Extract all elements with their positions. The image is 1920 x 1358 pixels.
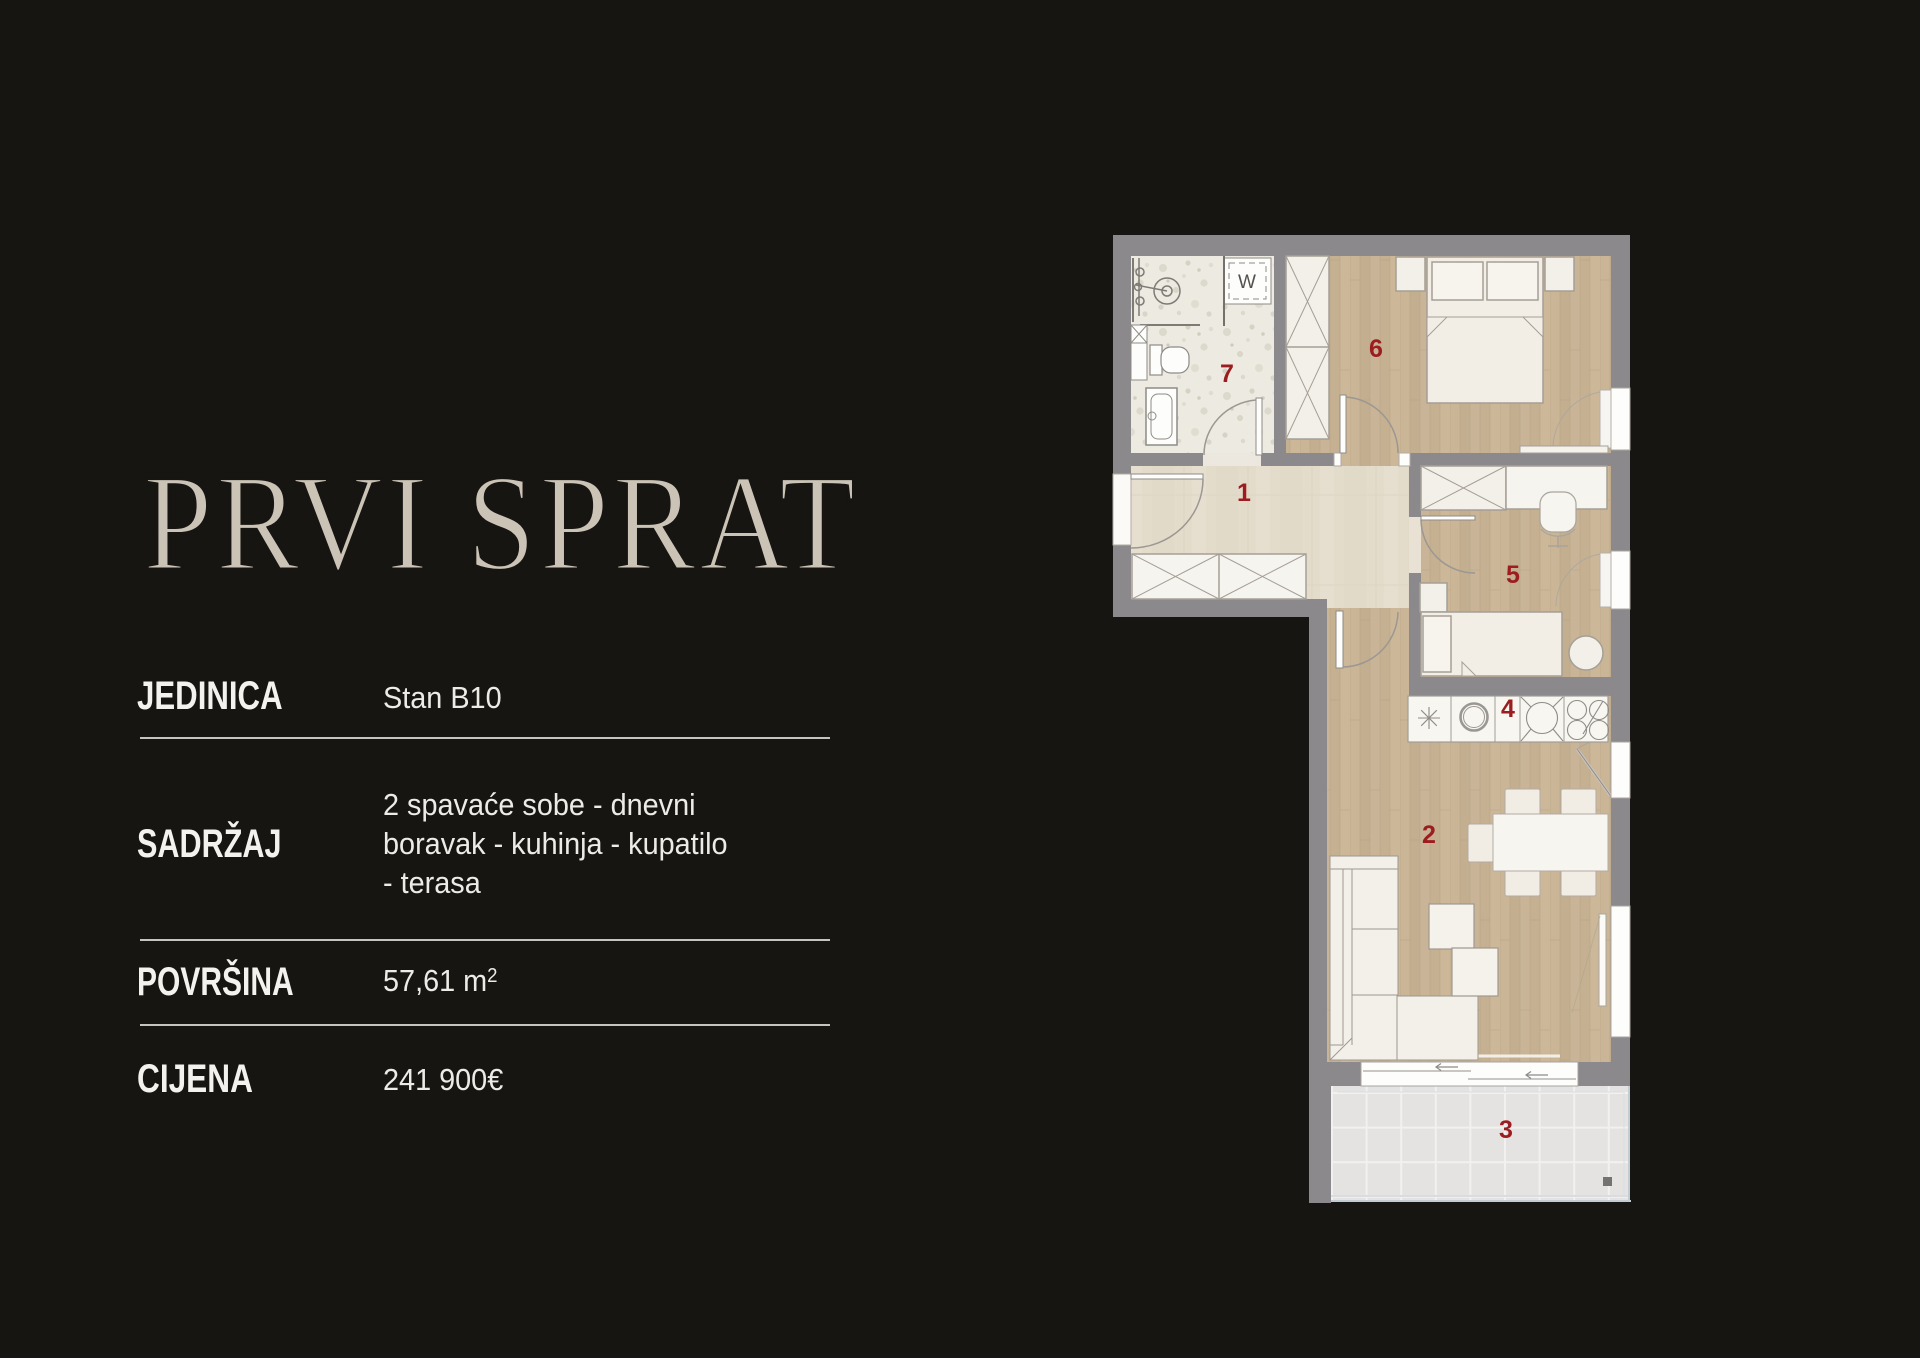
svg-text:5: 5 xyxy=(1506,561,1520,589)
svg-text:2: 2 xyxy=(1422,821,1436,849)
svg-text:1: 1 xyxy=(1237,479,1251,507)
svg-text:W: W xyxy=(1238,272,1256,293)
svg-text:6: 6 xyxy=(1369,335,1383,363)
svg-text:3: 3 xyxy=(1499,1116,1513,1144)
svg-text:7: 7 xyxy=(1220,360,1234,388)
svg-text:4: 4 xyxy=(1501,695,1515,723)
